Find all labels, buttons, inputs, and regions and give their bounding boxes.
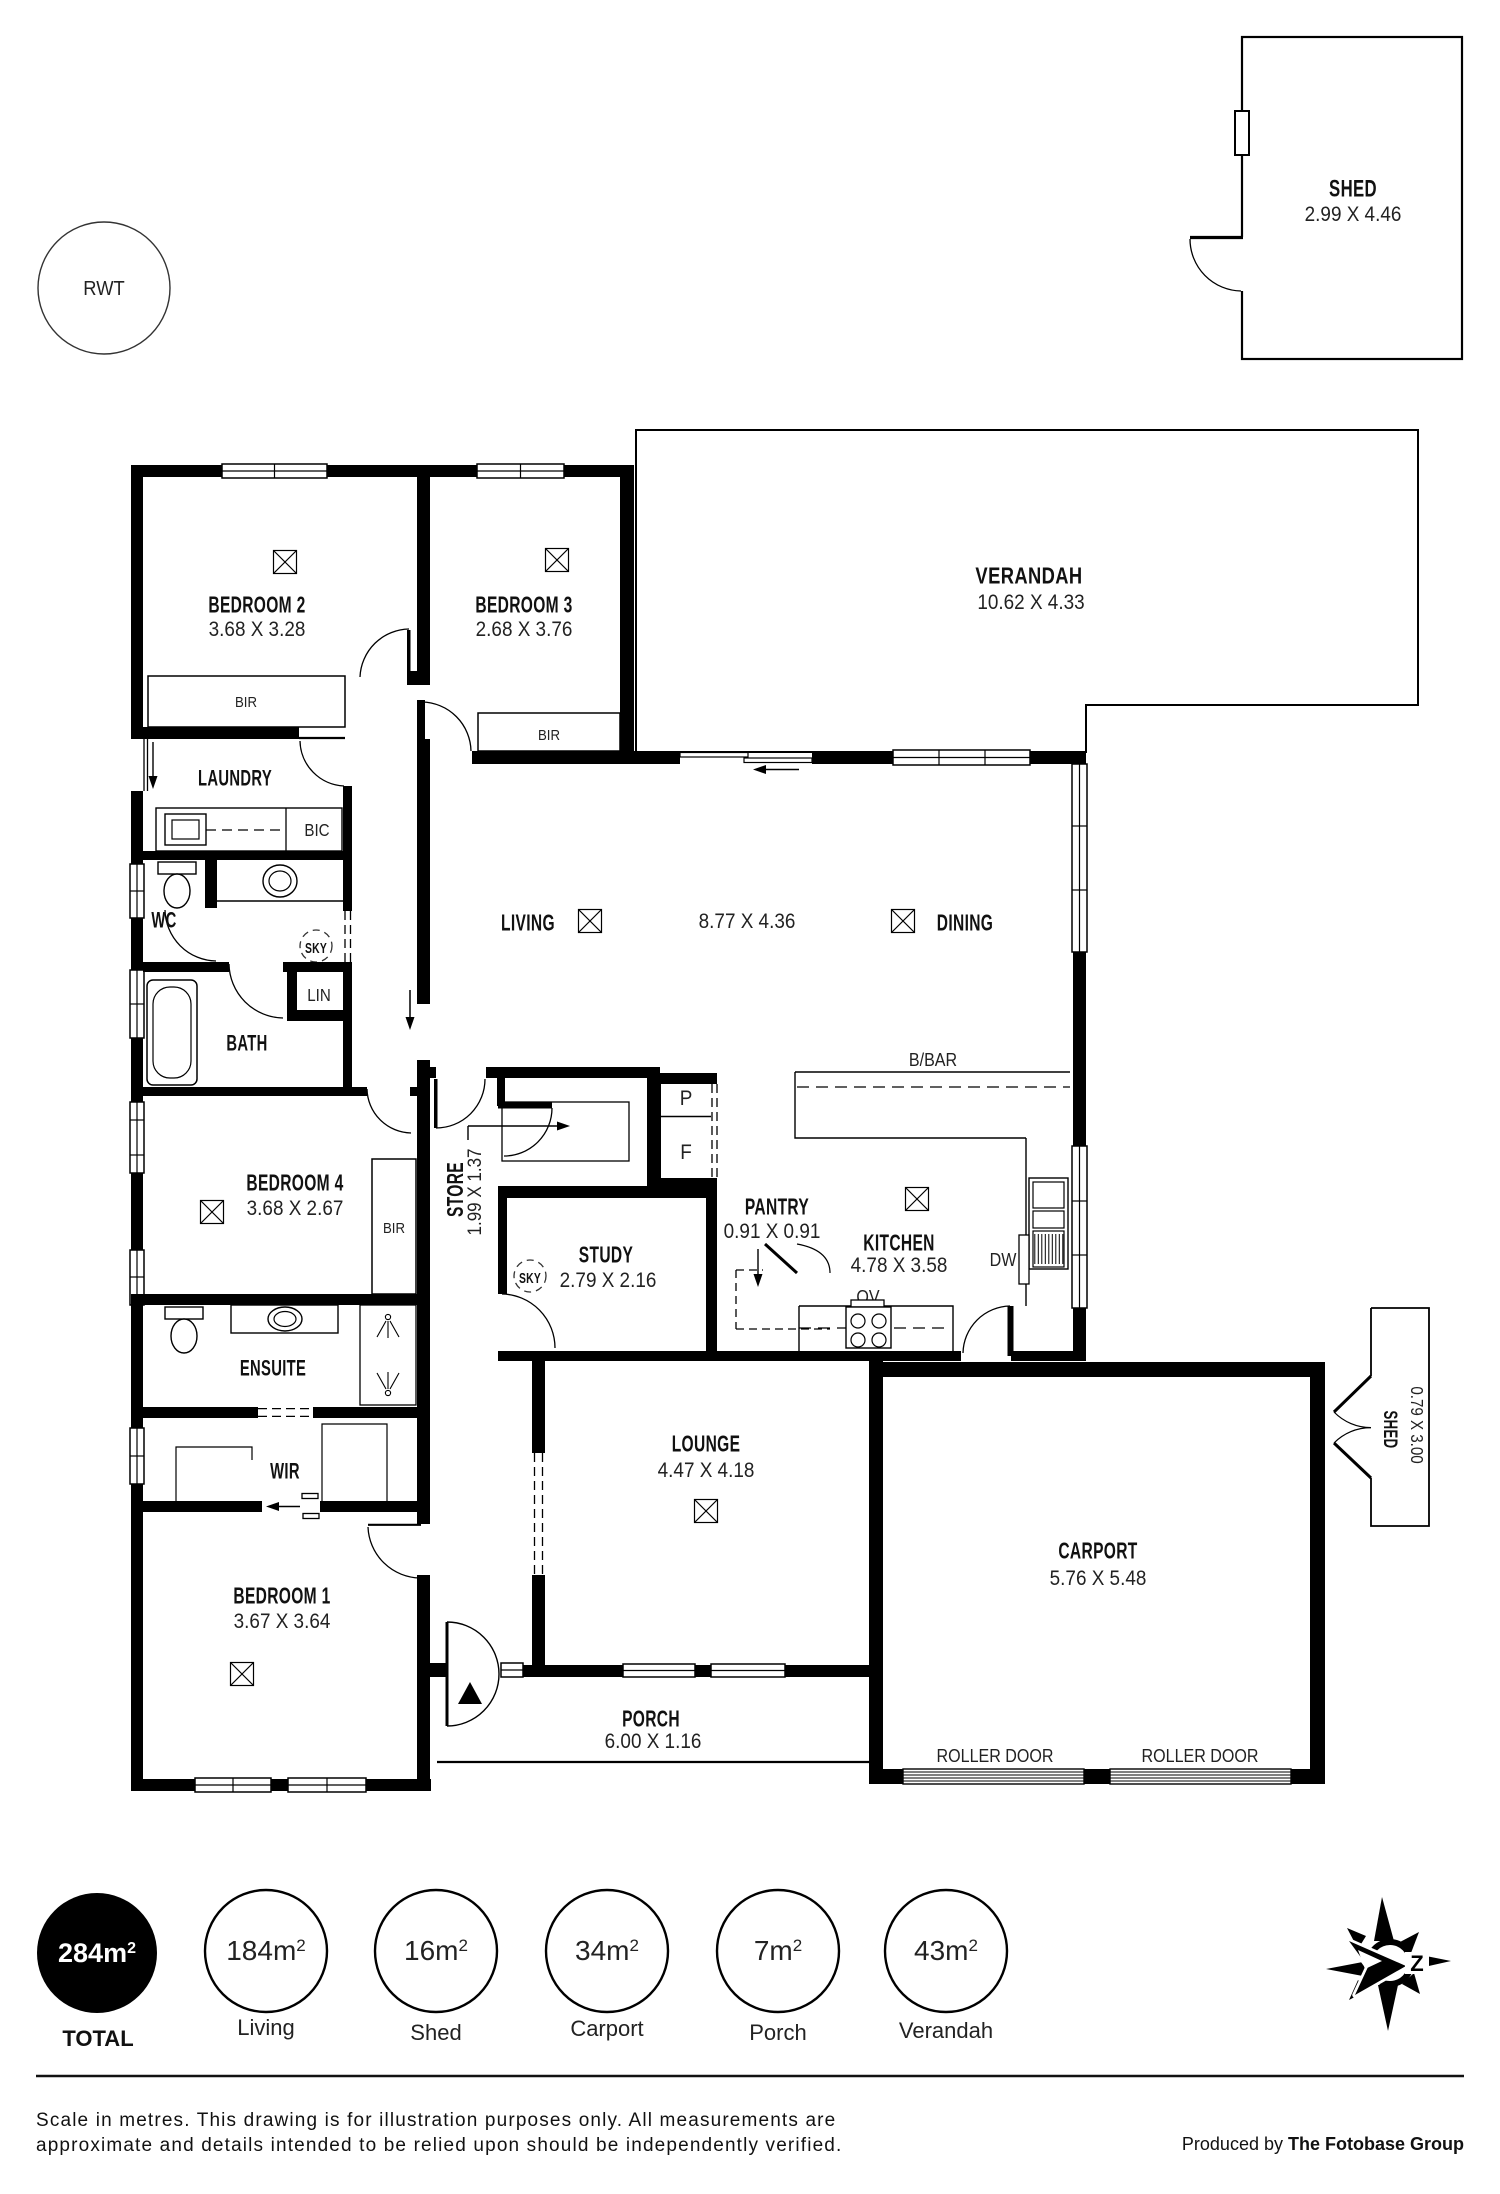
svg-text:BEDROOM 3: BEDROOM 3 — [475, 593, 572, 619]
svg-text:STUDY: STUDY — [579, 1243, 633, 1269]
svg-text:34m2: 34m2 — [575, 1935, 639, 1966]
svg-text:2.99 X 4.46: 2.99 X 4.46 — [1305, 203, 1402, 226]
svg-text:DINING: DINING — [937, 911, 993, 937]
svg-text:BIR: BIR — [235, 693, 257, 710]
svg-text:BIC: BIC — [304, 821, 330, 840]
svg-text:BEDROOM 4: BEDROOM 4 — [246, 1171, 343, 1197]
svg-text:Scale in metres. This drawing: Scale in metres. This drawing is for ill… — [36, 2110, 836, 2131]
svg-text:16m2: 16m2 — [404, 1935, 468, 1966]
svg-text:VERANDAH: VERANDAH — [975, 564, 1082, 590]
svg-text:Porch: Porch — [749, 2020, 806, 2045]
svg-text:LIVING: LIVING — [501, 911, 555, 937]
svg-text:ROLLER DOOR: ROLLER DOOR — [1142, 1745, 1259, 1766]
svg-text:P: P — [680, 1087, 693, 1110]
svg-text:4.78 X 3.58: 4.78 X 3.58 — [851, 1254, 948, 1277]
svg-text:PANTRY: PANTRY — [745, 1195, 809, 1221]
svg-text:0.91 X 0.91: 0.91 X 0.91 — [724, 1220, 821, 1243]
svg-text:LIN: LIN — [307, 986, 331, 1005]
svg-text:BIR: BIR — [538, 726, 560, 743]
svg-text:ROLLER DOOR: ROLLER DOOR — [937, 1745, 1054, 1766]
svg-text:3.68 X 3.28: 3.68 X 3.28 — [209, 618, 306, 641]
svg-text:184m2: 184m2 — [226, 1935, 306, 1966]
svg-text:284m2: 284m2 — [58, 1938, 136, 1968]
svg-text:RWT: RWT — [83, 277, 125, 300]
svg-text:3.67 X 3.64: 3.67 X 3.64 — [234, 1610, 331, 1633]
svg-text:10.62 X 4.33: 10.62 X 4.33 — [977, 591, 1084, 614]
svg-text:Shed: Shed — [410, 2020, 461, 2045]
svg-text:WIR: WIR — [270, 1459, 300, 1484]
svg-text:B/BAR: B/BAR — [909, 1049, 957, 1070]
svg-text:TOTAL: TOTAL — [62, 2026, 133, 2051]
svg-text:6.00 X 1.16: 6.00 X 1.16 — [605, 1730, 702, 1753]
svg-text:0.79 X 3.00: 0.79 X 3.00 — [1407, 1386, 1426, 1463]
svg-text:CARPORT: CARPORT — [1058, 1539, 1137, 1565]
svg-text:WC: WC — [151, 908, 176, 933]
svg-text:KITCHEN: KITCHEN — [863, 1231, 935, 1257]
svg-text:SKY: SKY — [305, 939, 327, 956]
svg-text:43m2: 43m2 — [914, 1935, 978, 1966]
svg-text:BIR: BIR — [383, 1219, 405, 1236]
svg-text:LOUNGE: LOUNGE — [672, 1432, 741, 1458]
svg-text:LAUNDRY: LAUNDRY — [198, 766, 272, 791]
svg-text:BEDROOM 2: BEDROOM 2 — [208, 593, 305, 619]
svg-text:SKY: SKY — [519, 1269, 541, 1286]
svg-text:Verandah: Verandah — [899, 2018, 993, 2043]
svg-text:F: F — [680, 1141, 692, 1164]
svg-text:8.77 X 4.36: 8.77 X 4.36 — [699, 910, 796, 933]
svg-text:5.76 X 5.48: 5.76 X 5.48 — [1050, 1567, 1147, 1590]
svg-text:approximate and details intend: approximate and details intended to be r… — [36, 2135, 842, 2156]
svg-text:3.68 X 2.67: 3.68 X 2.67 — [247, 1197, 344, 1220]
svg-text:SHED: SHED — [1329, 176, 1377, 203]
svg-text:Living: Living — [237, 2015, 294, 2040]
svg-text:SHED: SHED — [1379, 1410, 1401, 1448]
svg-text:4.47 X 4.18: 4.47 X 4.18 — [658, 1459, 755, 1482]
svg-text:2.68 X 3.76: 2.68 X 3.76 — [476, 618, 573, 641]
svg-text:1.99 X 1.37: 1.99 X 1.37 — [464, 1149, 485, 1236]
svg-text:2.79 X 2.16: 2.79 X 2.16 — [560, 1269, 657, 1292]
svg-text:Z: Z — [1410, 1951, 1423, 1976]
svg-text:DW: DW — [990, 1249, 1018, 1270]
svg-text:ENSUITE: ENSUITE — [240, 1356, 306, 1381]
svg-text:Carport: Carport — [570, 2016, 643, 2041]
svg-text:BEDROOM 1: BEDROOM 1 — [233, 1584, 330, 1610]
svg-text:PORCH: PORCH — [622, 1707, 680, 1733]
svg-text:BATH: BATH — [226, 1031, 267, 1056]
svg-text:Produced by The Fotobase Group: Produced by The Fotobase Group — [1182, 2134, 1464, 2154]
